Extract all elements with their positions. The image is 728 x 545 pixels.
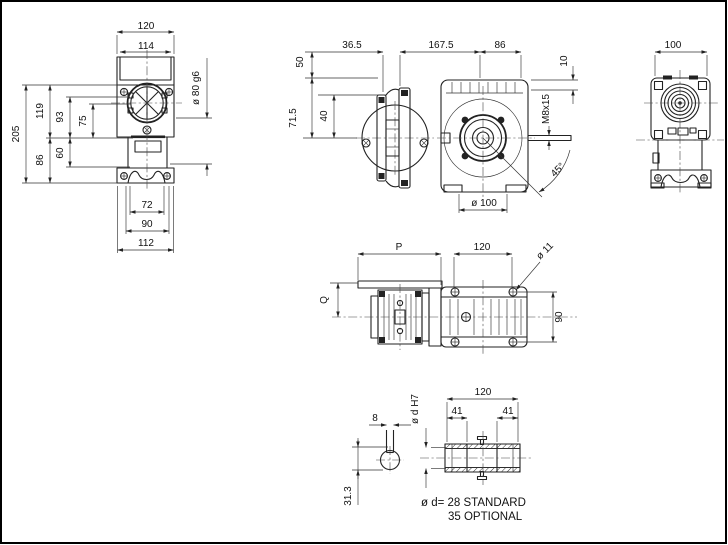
dim-120-top: 120 [138, 21, 155, 32]
dim-m8x15: M8x15 [541, 94, 552, 124]
gearbox-technical-drawing: 120 114 205 119 86 93 60 75 72 90 1 [0, 0, 728, 545]
dim-41-right: 41 [502, 406, 514, 417]
dim-114: 114 [138, 41, 154, 52]
sheet-border [1, 1, 726, 543]
dim-100-end: 100 [665, 40, 682, 51]
dim-spigot-80g6: ø 80 g6 [191, 71, 202, 105]
note-optional-bore: 35 OPTIONAL [448, 511, 523, 523]
dim-keyway-depth: 31.3 [343, 486, 354, 506]
dim-120-shaft: 120 [475, 387, 492, 398]
dim-Q: Q [319, 296, 330, 304]
dim-10: 10 [559, 55, 570, 67]
dim-40: 40 [319, 110, 330, 122]
dim-93: 93 [55, 111, 66, 123]
dim-41-left: 41 [451, 406, 463, 417]
dim-50: 50 [295, 56, 306, 68]
dim-86-side: 86 [494, 40, 506, 51]
drawing-page: 120 114 205 119 86 93 60 75 72 90 1 [0, 0, 728, 545]
dim-bore-dH7: ø d H7 [410, 394, 421, 424]
dim-90-front: 90 [141, 219, 153, 230]
note-standard-bore: ø d= 28 STANDARD [421, 497, 526, 509]
dim-dia100: ø 100 [471, 198, 497, 209]
dim-71-5: 71.5 [288, 108, 299, 128]
dim-119: 119 [35, 103, 46, 119]
dim-167-5: 167.5 [428, 40, 453, 51]
dim-112: 112 [138, 238, 154, 249]
dim-86: 86 [35, 154, 46, 166]
dim-60: 60 [55, 147, 66, 159]
dim-P: P [396, 242, 403, 253]
dim-36-5: 36.5 [342, 40, 362, 51]
dim-keyway-8: 8 [372, 413, 378, 424]
dim-75: 75 [78, 115, 89, 127]
dim-120-plan: 120 [474, 242, 491, 253]
dim-90-plan: 90 [554, 311, 565, 323]
dim-72: 72 [141, 200, 153, 211]
dim-205: 205 [11, 125, 22, 142]
